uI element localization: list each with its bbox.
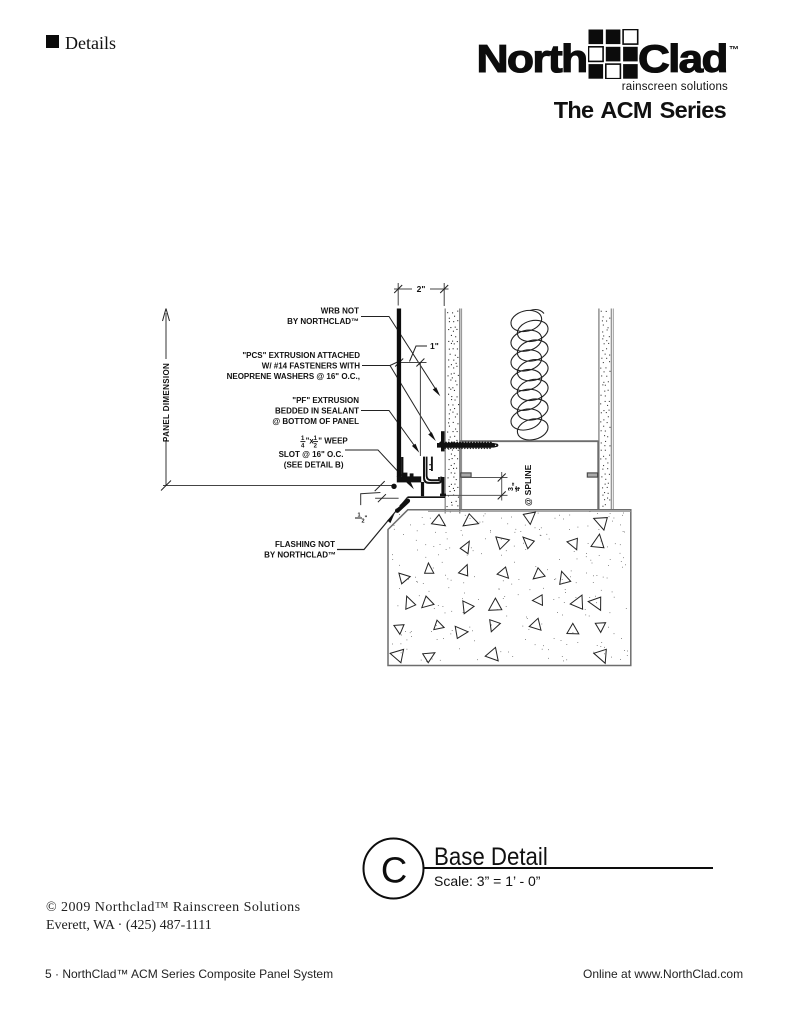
svg-text:BEDDED IN SEALANT: BEDDED IN SEALANT [275,407,359,416]
svg-text:" WEEP: " WEEP [318,437,348,446]
svg-text:@ BOTTOM OF PANEL: @ BOTTOM OF PANEL [272,417,359,426]
svg-text:(SEE DETAIL B): (SEE DETAIL B) [284,461,344,470]
svg-text:WRB NOT: WRB NOT [321,307,359,316]
svg-text:": " [365,516,368,522]
svg-text:@ SPLINE: @ SPLINE [523,464,533,506]
svg-text:W/ #14 FASTENERS WITH: W/ #14 FASTENERS WITH [262,362,360,371]
svg-text:"PF" EXTRUSION: "PF" EXTRUSION [292,396,359,405]
svg-text:FLASHING NOT: FLASHING NOT [275,540,335,549]
svg-text:NEOPRENE WASHERS @ 16" O.C.,: NEOPRENE WASHERS @ 16" O.C., [227,372,360,381]
svg-text:SLOT @ 16" O.C.: SLOT @ 16" O.C. [279,450,344,459]
svg-text:4: 4 [301,444,305,450]
svg-text:": " [511,482,520,486]
svg-text:BY NORTHCLAD™: BY NORTHCLAD™ [287,317,359,326]
svg-text:BY NORTHCLAD™: BY NORTHCLAD™ [264,551,336,560]
svg-text:PANEL DIMENSION: PANEL DIMENSION [162,363,171,442]
svg-text:2: 2 [314,444,318,450]
svg-text:2": 2" [417,284,426,294]
svg-text:3: 3 [508,487,515,491]
svg-text:C: C [381,850,407,891]
svg-text:1": 1" [430,341,439,351]
svg-text:"PCS" EXTRUSION ATTACHED: "PCS" EXTRUSION ATTACHED [242,351,360,360]
